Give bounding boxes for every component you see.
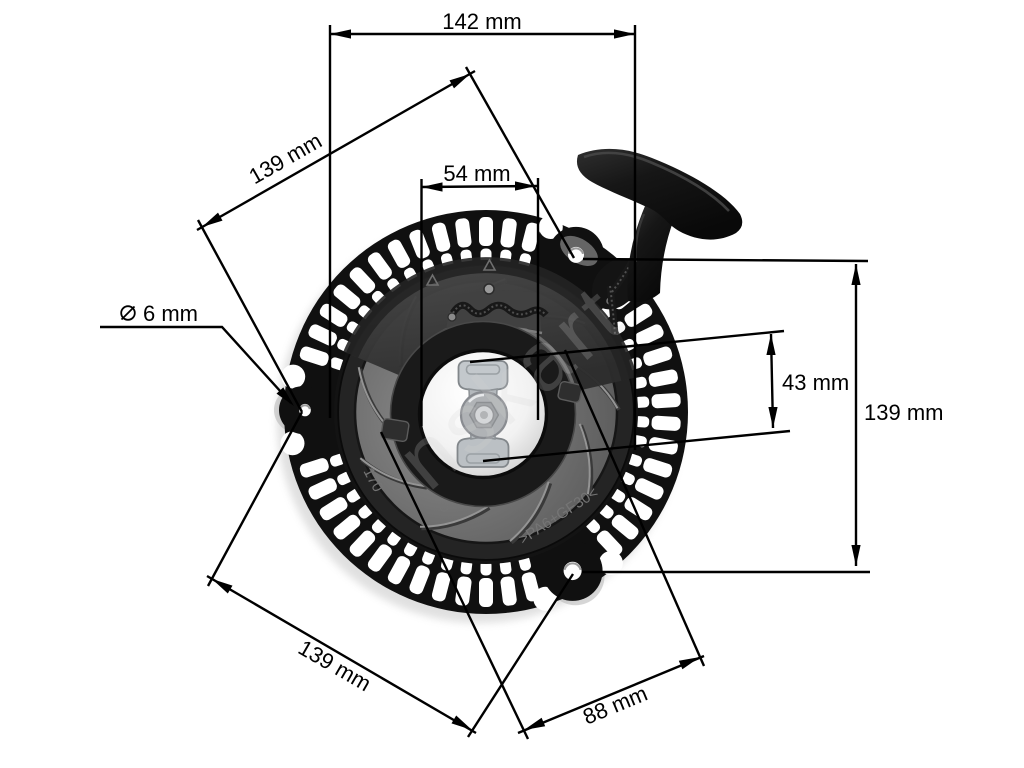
- svg-text:6 mm: 6 mm: [143, 301, 198, 326]
- svg-text:54 mm: 54 mm: [443, 161, 510, 186]
- svg-text:139 mm: 139 mm: [864, 400, 943, 425]
- svg-text:142 mm: 142 mm: [442, 9, 521, 34]
- svg-text:43 mm: 43 mm: [782, 370, 849, 395]
